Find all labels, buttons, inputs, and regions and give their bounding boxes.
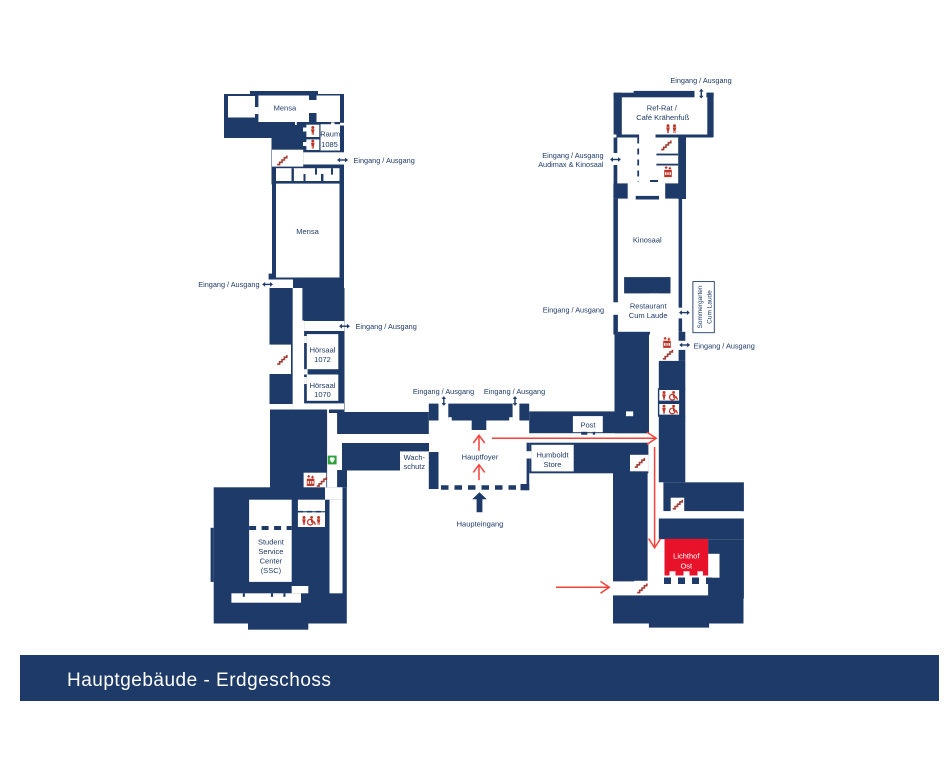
svg-text:Eingang / Ausgang: Eingang / Ausgang bbox=[484, 387, 545, 396]
svg-text:Eingang / Ausgang: Eingang / Ausgang bbox=[198, 280, 259, 289]
svg-text:Eingang / Ausgang: Eingang / Ausgang bbox=[694, 342, 755, 351]
svg-text:Lichthof: Lichthof bbox=[673, 552, 700, 561]
svg-text:1070: 1070 bbox=[314, 390, 331, 399]
svg-text:Raum: Raum bbox=[320, 130, 340, 139]
svg-text:Hörsaal: Hörsaal bbox=[310, 346, 336, 355]
svg-text:schutz: schutz bbox=[403, 462, 425, 471]
svg-text:Eingang / Ausgang: Eingang / Ausgang bbox=[356, 322, 417, 331]
svg-text:1085: 1085 bbox=[321, 140, 338, 149]
svg-text:Haupteingang: Haupteingang bbox=[457, 520, 504, 529]
svg-text:Hauptgebäude - Erdgeschoss: Hauptgebäude - Erdgeschoss bbox=[67, 670, 331, 691]
svg-text:Restaurant: Restaurant bbox=[630, 302, 668, 311]
svg-text:Cum Laude: Cum Laude bbox=[706, 290, 713, 324]
svg-text:Mensa: Mensa bbox=[296, 227, 319, 236]
svg-text:Cum Laude: Cum Laude bbox=[629, 311, 668, 320]
svg-text:1072: 1072 bbox=[314, 355, 331, 364]
svg-text:Eingang / Ausgang: Eingang / Ausgang bbox=[670, 76, 731, 85]
svg-text:(SSC): (SSC) bbox=[261, 566, 282, 575]
svg-text:Wach-: Wach- bbox=[404, 453, 426, 462]
svg-text:Kinosaal: Kinosaal bbox=[633, 236, 662, 245]
svg-text:Store: Store bbox=[544, 460, 562, 469]
svg-text:Hörsaal: Hörsaal bbox=[310, 381, 336, 390]
svg-text:Student: Student bbox=[258, 538, 285, 547]
svg-text:Mensa: Mensa bbox=[274, 104, 297, 113]
svg-text:Eingang / Ausgang: Eingang / Ausgang bbox=[543, 306, 604, 315]
svg-text:Center: Center bbox=[260, 557, 283, 566]
svg-text:Eingang / Ausgang: Eingang / Ausgang bbox=[413, 387, 474, 396]
svg-text:Service: Service bbox=[258, 547, 283, 556]
svg-text:Post: Post bbox=[580, 421, 596, 430]
svg-text:Sommergarten: Sommergarten bbox=[697, 285, 704, 328]
svg-text:Humboldt: Humboldt bbox=[536, 451, 569, 460]
svg-text:Audimax & Kinosaal: Audimax & Kinosaal bbox=[538, 160, 604, 169]
svg-text:Café Krähenfuß: Café Krähenfuß bbox=[636, 113, 689, 122]
svg-text:Hauptfoyer: Hauptfoyer bbox=[462, 453, 499, 462]
svg-text:Eingang / Ausgang: Eingang / Ausgang bbox=[542, 151, 603, 160]
svg-text:Ost: Ost bbox=[680, 562, 693, 571]
svg-text:Ref-Rat /: Ref-Rat / bbox=[647, 104, 678, 113]
svg-text:Eingang / Ausgang: Eingang / Ausgang bbox=[354, 156, 415, 165]
